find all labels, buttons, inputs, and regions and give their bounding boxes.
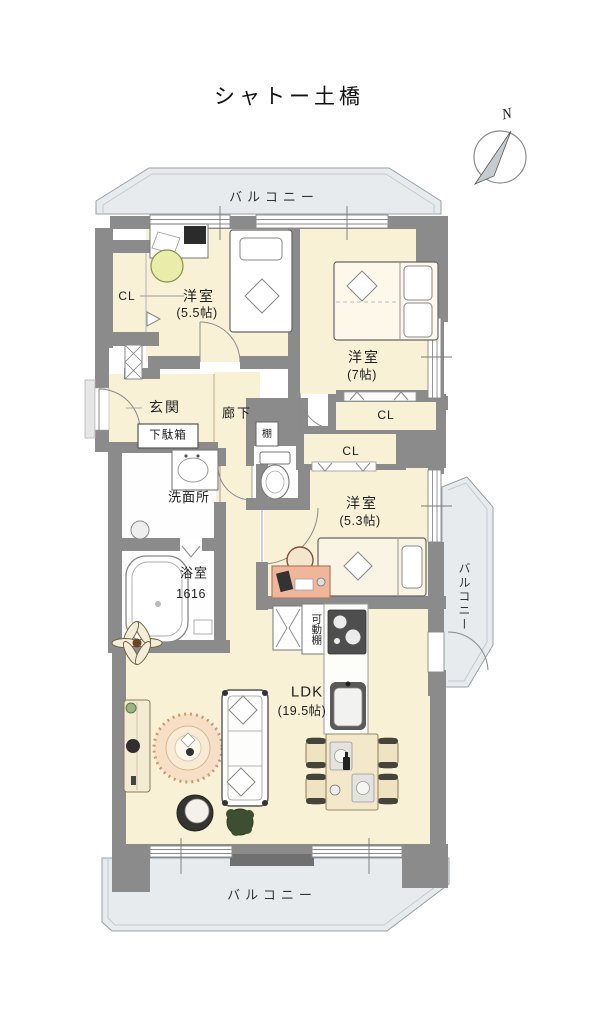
balcony-bottom-label: バルコニー xyxy=(227,889,317,902)
bedroom1-size: (5.5帖) xyxy=(176,307,217,320)
entrance-porch xyxy=(85,380,109,438)
closet-bedroom1-label: CL xyxy=(118,290,135,302)
floor-plan-canvas: シャトー土橋 N バルコニー バルコニー バルコニー 洋室 (5.5帖) 洋室 … xyxy=(0,0,616,1024)
compass xyxy=(474,131,526,184)
bedroom2-label: 洋室 xyxy=(348,350,380,364)
balcony-right-label: バルコニー xyxy=(458,562,470,632)
desk-lamp xyxy=(317,578,325,586)
balcony-top-label: バルコニー xyxy=(229,191,319,204)
kitchen-counter xyxy=(324,604,368,734)
bed-single xyxy=(230,230,292,332)
bedroom1-label: 洋室 xyxy=(183,289,215,303)
compass-needle xyxy=(475,131,511,184)
shoe-cabinet-label: 下駄箱 xyxy=(149,430,187,442)
bathroom-size-label: 1616 xyxy=(176,588,206,601)
ldk-size-label: (19.5帖) xyxy=(278,705,327,718)
floor-plan-drawing xyxy=(0,0,616,1024)
shelf-label: 棚 xyxy=(262,430,272,440)
bedroom2-furniture xyxy=(334,262,438,340)
ldk-label: LDK xyxy=(291,685,323,700)
bed-double xyxy=(334,262,438,340)
kitchen-sink xyxy=(330,682,366,731)
stove xyxy=(328,610,366,654)
entrance-label: 玄関 xyxy=(149,400,181,414)
round-chair xyxy=(177,795,213,831)
sofa xyxy=(222,690,268,806)
plan-title: シャトー土橋 xyxy=(214,87,364,108)
desk-paper xyxy=(295,579,313,590)
printer xyxy=(184,226,206,244)
stool xyxy=(151,250,183,282)
closet-bedroom3-label: CL xyxy=(342,445,359,457)
washing-machine xyxy=(131,521,149,539)
bathroom-label: 浴室 xyxy=(180,567,208,580)
hallway-label: 廊下 xyxy=(222,407,252,420)
closet-bedroom2-label: CL xyxy=(377,409,394,421)
round-rug xyxy=(154,714,222,782)
bed-single-2 xyxy=(318,538,426,596)
tv-board xyxy=(124,700,150,792)
pipe-shaft-hatch xyxy=(125,345,142,379)
washroom-label: 洗面所 xyxy=(168,491,210,504)
bedroom3-size: (5.3帖) xyxy=(339,515,380,528)
movable-shelf-label: 可動棚 xyxy=(311,613,322,645)
bedroom2-size: (7帖) xyxy=(347,369,377,382)
double-door-storage xyxy=(273,606,303,650)
toilet xyxy=(260,452,290,499)
bedroom3-label: 洋室 xyxy=(346,496,378,510)
